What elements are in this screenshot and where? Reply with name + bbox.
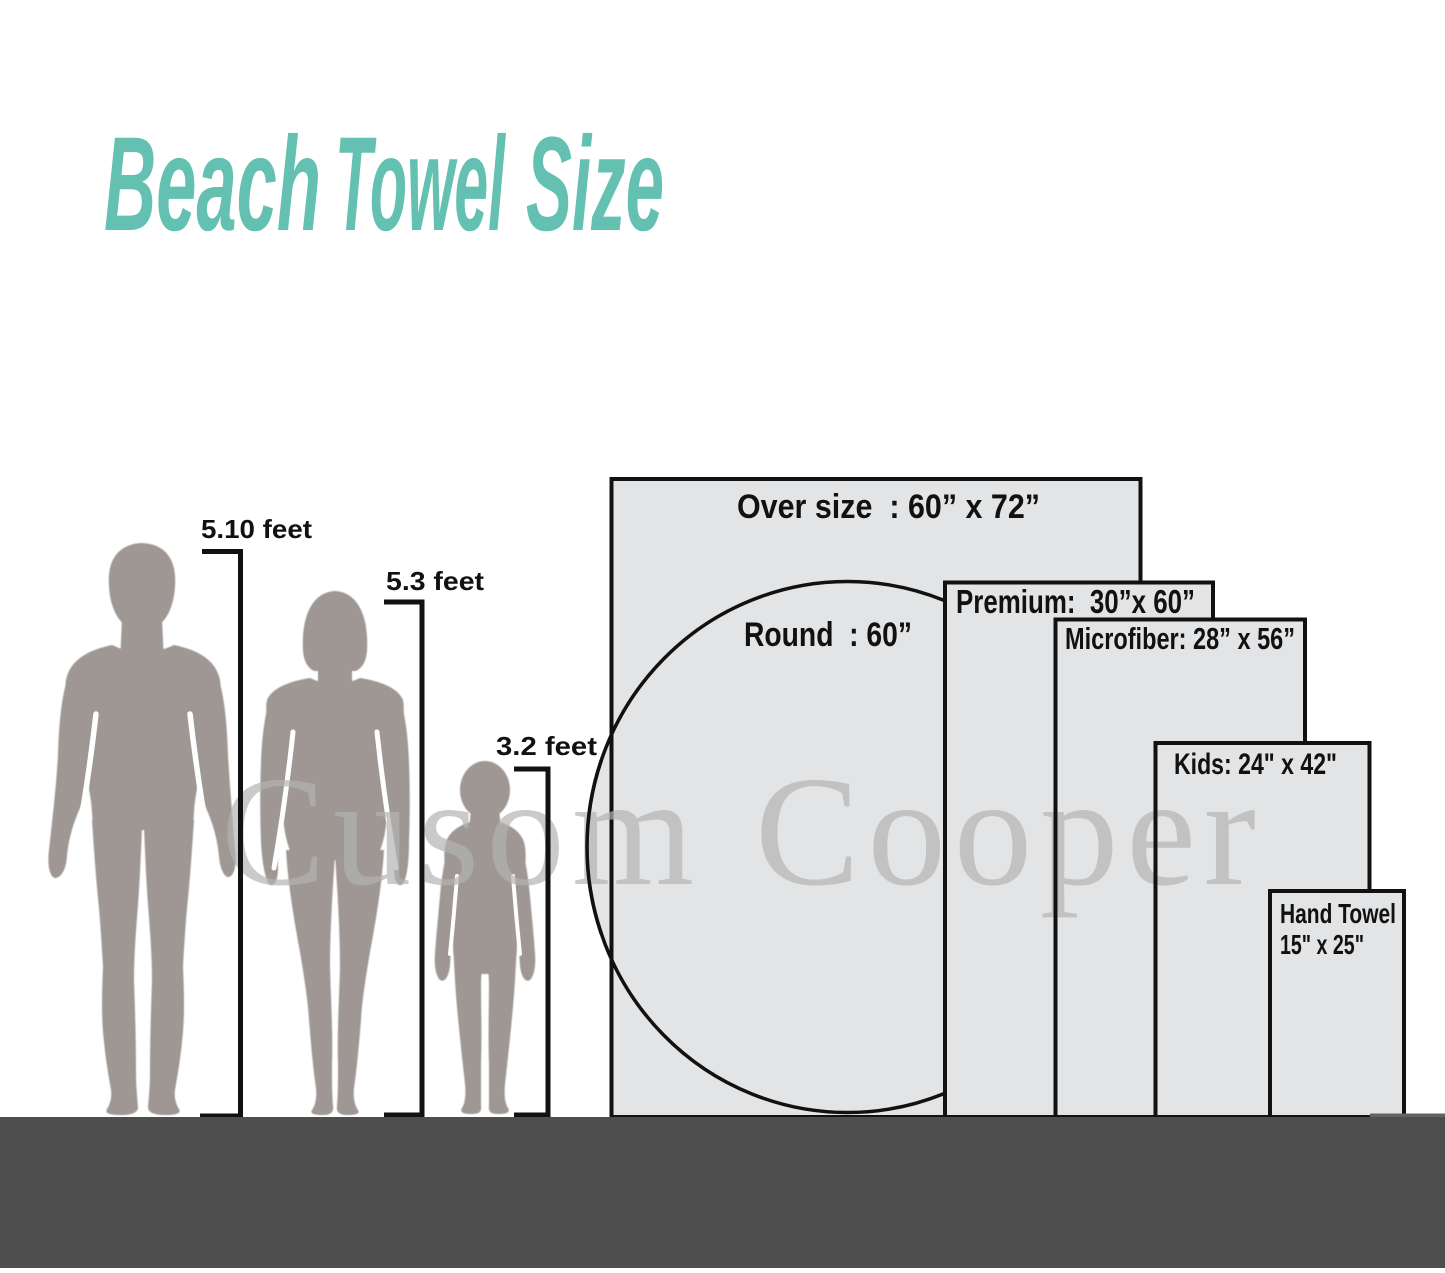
svg-text:Cusom: Cusom (221, 744, 694, 918)
svg-text:5.3 feet: 5.3 feet (386, 566, 484, 596)
svg-text:Premium: 30”x 60”: Premium: 30”x 60” (956, 583, 1195, 620)
svg-text:Over size : 60” x 72”: Over size : 60” x 72” (737, 488, 1040, 526)
svg-text:15" x 25": 15" x 25" (1280, 929, 1364, 960)
svg-text:Round : 60”: Round : 60” (744, 616, 912, 654)
svg-text:Microfiber: 28” x 56”: Microfiber: 28” x 56” (1065, 621, 1295, 656)
svg-text:Beach: Beach (104, 110, 321, 259)
svg-text:5.10 feet: 5.10 feet (201, 514, 312, 544)
svg-text:Towel: Towel (335, 110, 506, 259)
svg-text:Hand Towel: Hand Towel (1280, 898, 1396, 929)
svg-text:Size: Size (526, 110, 664, 259)
svg-text:Cooper: Cooper (755, 744, 1256, 918)
